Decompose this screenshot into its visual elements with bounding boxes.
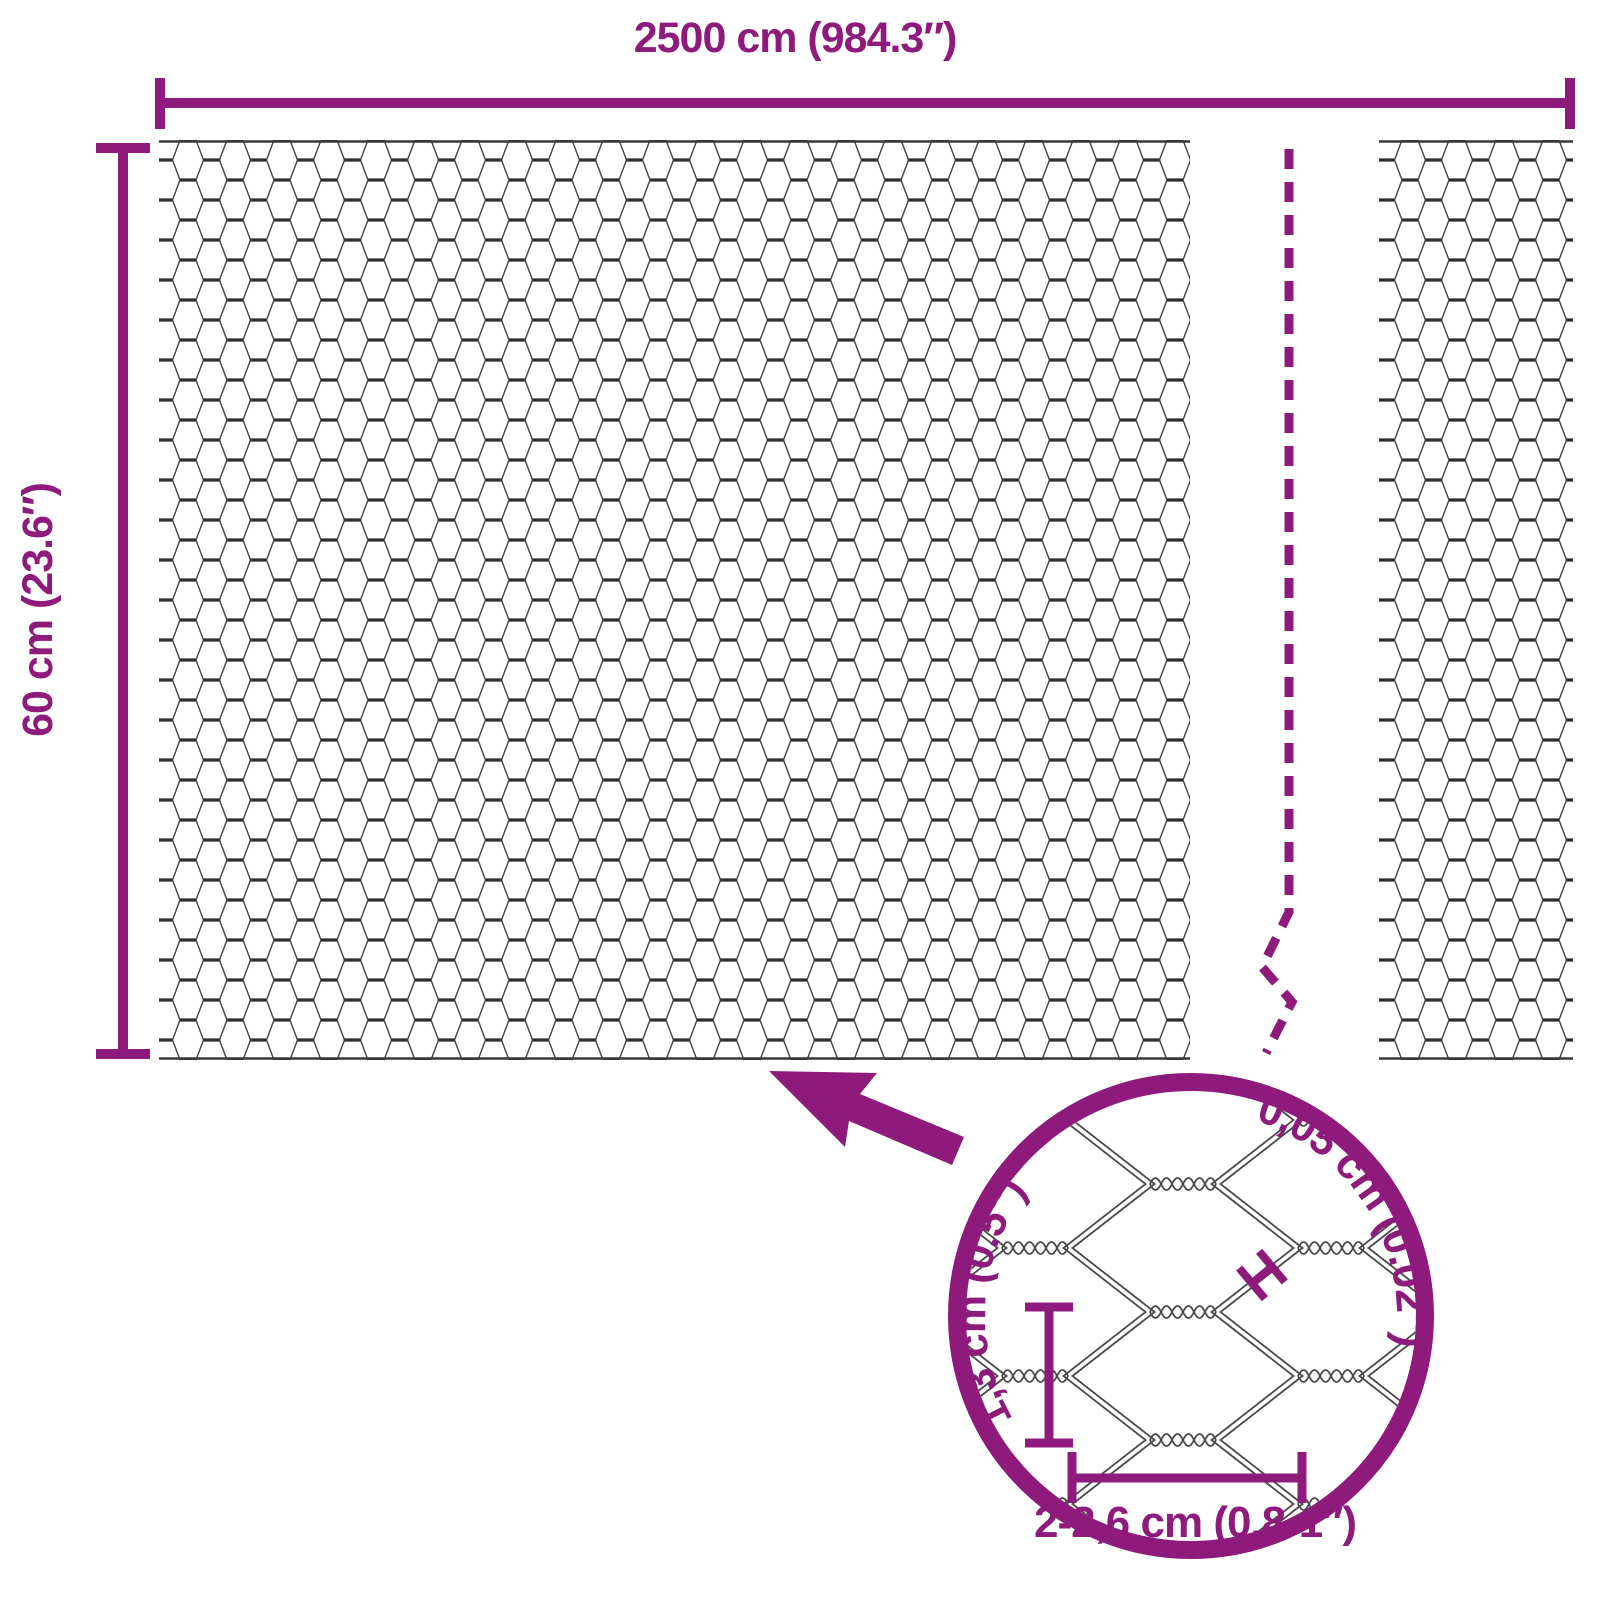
overall-width-dimension: 2500 cm (984.3″) [159, 14, 1570, 129]
zoom-arrow-icon [769, 1071, 964, 1165]
mesh-cell-width-label: 2-2,6 cm (0.8-1″) [1034, 1498, 1356, 1547]
mesh-pattern-left [159, 140, 1190, 1060]
diagram-canvas: 2500 cm (984.3″) 60 cm (23.6″) [0, 0, 1600, 1600]
mesh-panel-right [1379, 140, 1573, 1060]
overall-height-label: 60 cm (23.6″) [14, 483, 62, 737]
overall-height-dimension: 60 cm (23.6″) [14, 148, 150, 1054]
mesh-panel-left [159, 140, 1190, 1060]
overall-width-label: 2500 cm (984.3″) [634, 14, 957, 62]
mesh-pattern-right [1379, 140, 1573, 1060]
product-dimension-diagram: 2500 cm (984.3″) 60 cm (23.6″) [0, 0, 1600, 1600]
magnifier-circle: 0,05 cm (0.02″) 1,3 cm (0.5″) 2-2,6 cm (… [916, 1056, 1451, 1568]
break-cut-line [1262, 149, 1292, 1053]
